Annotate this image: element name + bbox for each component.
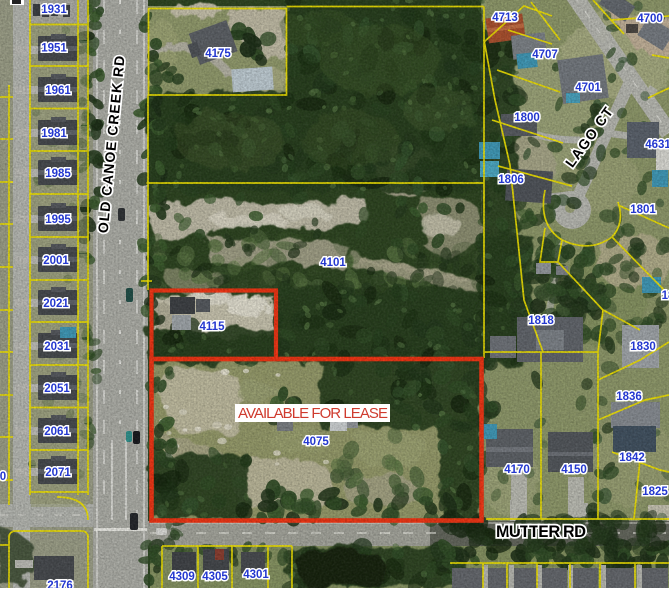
svg-text:0: 0 <box>0 471 6 483</box>
svg-text:1951: 1951 <box>41 43 67 55</box>
svg-text:2021: 2021 <box>43 298 69 310</box>
svg-text:4707: 4707 <box>532 49 558 61</box>
svg-text:1931: 1931 <box>41 4 67 16</box>
svg-text:4631: 4631 <box>645 139 669 151</box>
svg-text:2176: 2176 <box>47 580 73 588</box>
svg-text:2001: 2001 <box>43 255 69 267</box>
svg-text:4713: 4713 <box>492 12 518 24</box>
svg-text:MUTTER RD: MUTTER RD <box>496 523 586 541</box>
svg-text:AVAILABLE FOR LEASE: AVAILABLE FOR LEASE <box>238 405 388 422</box>
svg-text:1800: 1800 <box>514 112 540 124</box>
svg-text:1995: 1995 <box>45 214 71 226</box>
svg-text:2031: 2031 <box>44 341 70 353</box>
svg-text:1985: 1985 <box>45 168 71 180</box>
svg-text:4170: 4170 <box>504 464 530 476</box>
svg-text:1961: 1961 <box>45 85 71 97</box>
svg-text:4101: 4101 <box>320 257 346 269</box>
svg-text:4305: 4305 <box>202 571 228 583</box>
svg-text:1981: 1981 <box>41 128 67 140</box>
svg-text:4700: 4700 <box>637 13 663 25</box>
svg-text:18: 18 <box>662 290 669 302</box>
svg-text:4115: 4115 <box>200 321 226 333</box>
svg-text:4075: 4075 <box>303 436 329 448</box>
svg-text:1818: 1818 <box>528 315 554 327</box>
svg-text:1801: 1801 <box>630 204 656 216</box>
svg-text:1836: 1836 <box>616 391 642 403</box>
svg-text:4150: 4150 <box>561 464 587 476</box>
svg-text:4309: 4309 <box>169 571 195 583</box>
svg-text:2071: 2071 <box>45 467 71 479</box>
svg-text:1830: 1830 <box>630 341 656 353</box>
svg-text:1842: 1842 <box>619 452 645 464</box>
svg-text:2051: 2051 <box>44 383 70 395</box>
svg-text:4301: 4301 <box>243 569 269 581</box>
svg-text:1806: 1806 <box>498 174 524 186</box>
svg-text:1825: 1825 <box>642 486 668 498</box>
svg-text:4175: 4175 <box>205 48 231 60</box>
svg-text:4701: 4701 <box>575 82 601 94</box>
svg-text:2061: 2061 <box>44 426 70 438</box>
